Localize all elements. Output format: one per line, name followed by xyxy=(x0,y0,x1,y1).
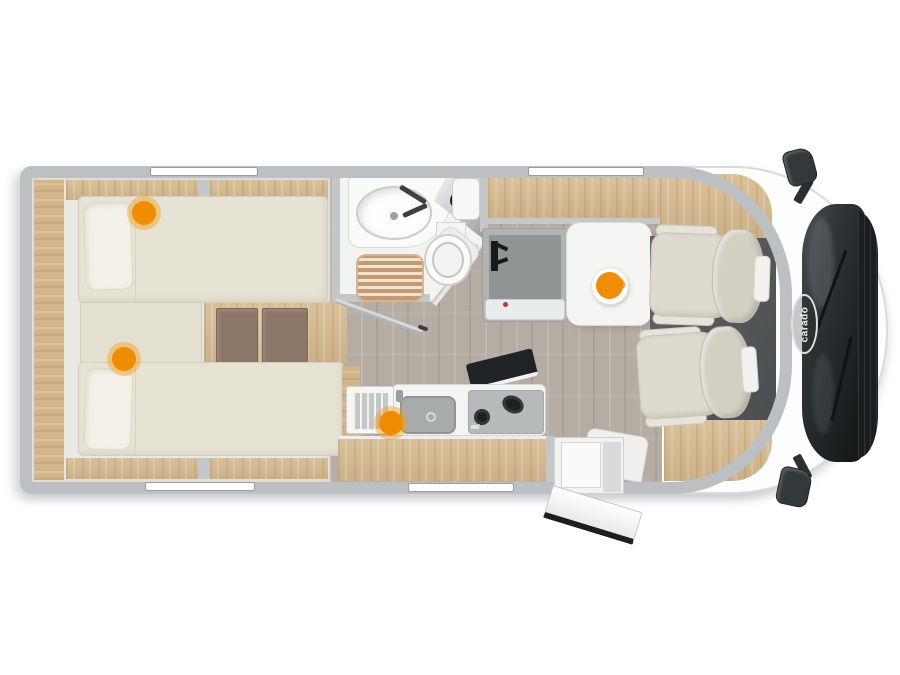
burner-icon xyxy=(474,409,490,425)
stove-control xyxy=(470,424,480,430)
brand-logo-text: carado xyxy=(799,306,810,342)
bed-step-1 xyxy=(216,308,258,363)
brand-logo: carado xyxy=(791,294,818,354)
window-bottom-rear xyxy=(145,482,255,491)
windshield-reflection xyxy=(812,354,834,434)
kitchen-drain xyxy=(426,412,436,422)
window-top-rear xyxy=(150,167,258,176)
pillow-upper xyxy=(82,201,133,291)
bed-step-2 xyxy=(262,308,308,363)
belt-button-icon xyxy=(503,302,508,307)
bathroom-wall-left xyxy=(332,172,340,302)
step-side xyxy=(603,442,621,492)
headrest xyxy=(740,346,759,393)
kitchen-base-cabinet xyxy=(338,436,552,481)
swivel-seat-top xyxy=(646,224,773,330)
entry-wall-stub xyxy=(546,436,554,482)
kitchen-faucet-icon xyxy=(396,390,403,402)
shelf-divider-bottom xyxy=(198,458,210,479)
shower-mat xyxy=(356,254,424,302)
bench-cushion xyxy=(485,299,565,320)
toilet-seat xyxy=(432,242,464,278)
overhead-shelf-bottom xyxy=(66,458,328,479)
swivel-seat-bottom xyxy=(635,322,766,430)
pillow-lower xyxy=(83,367,134,451)
front-grille xyxy=(858,212,878,458)
window-top-front xyxy=(528,167,644,176)
rear-wardrobe-panel xyxy=(34,180,64,480)
overhead-locker-dinette xyxy=(488,178,662,220)
dinette-bench xyxy=(482,228,568,322)
window-bottom-front xyxy=(408,483,514,492)
hotspot-bed-upper[interactable] xyxy=(132,201,156,225)
hotspot-kitchen[interactable] xyxy=(379,411,403,435)
hotspot-dinette[interactable] xyxy=(596,272,623,299)
step-tread xyxy=(561,442,601,488)
headrest xyxy=(753,256,771,303)
bed-filler-cushion xyxy=(80,302,202,364)
sink-drain xyxy=(390,212,398,220)
hotspot-bed-lower[interactable] xyxy=(112,347,136,371)
upper-cabinet xyxy=(452,178,480,220)
entry-step-well xyxy=(554,437,624,494)
cab-step-wood-bottom xyxy=(664,420,772,481)
mattress-seam xyxy=(135,365,136,455)
partition-wall xyxy=(480,170,488,232)
rv-floorplan: carado xyxy=(0,0,900,675)
